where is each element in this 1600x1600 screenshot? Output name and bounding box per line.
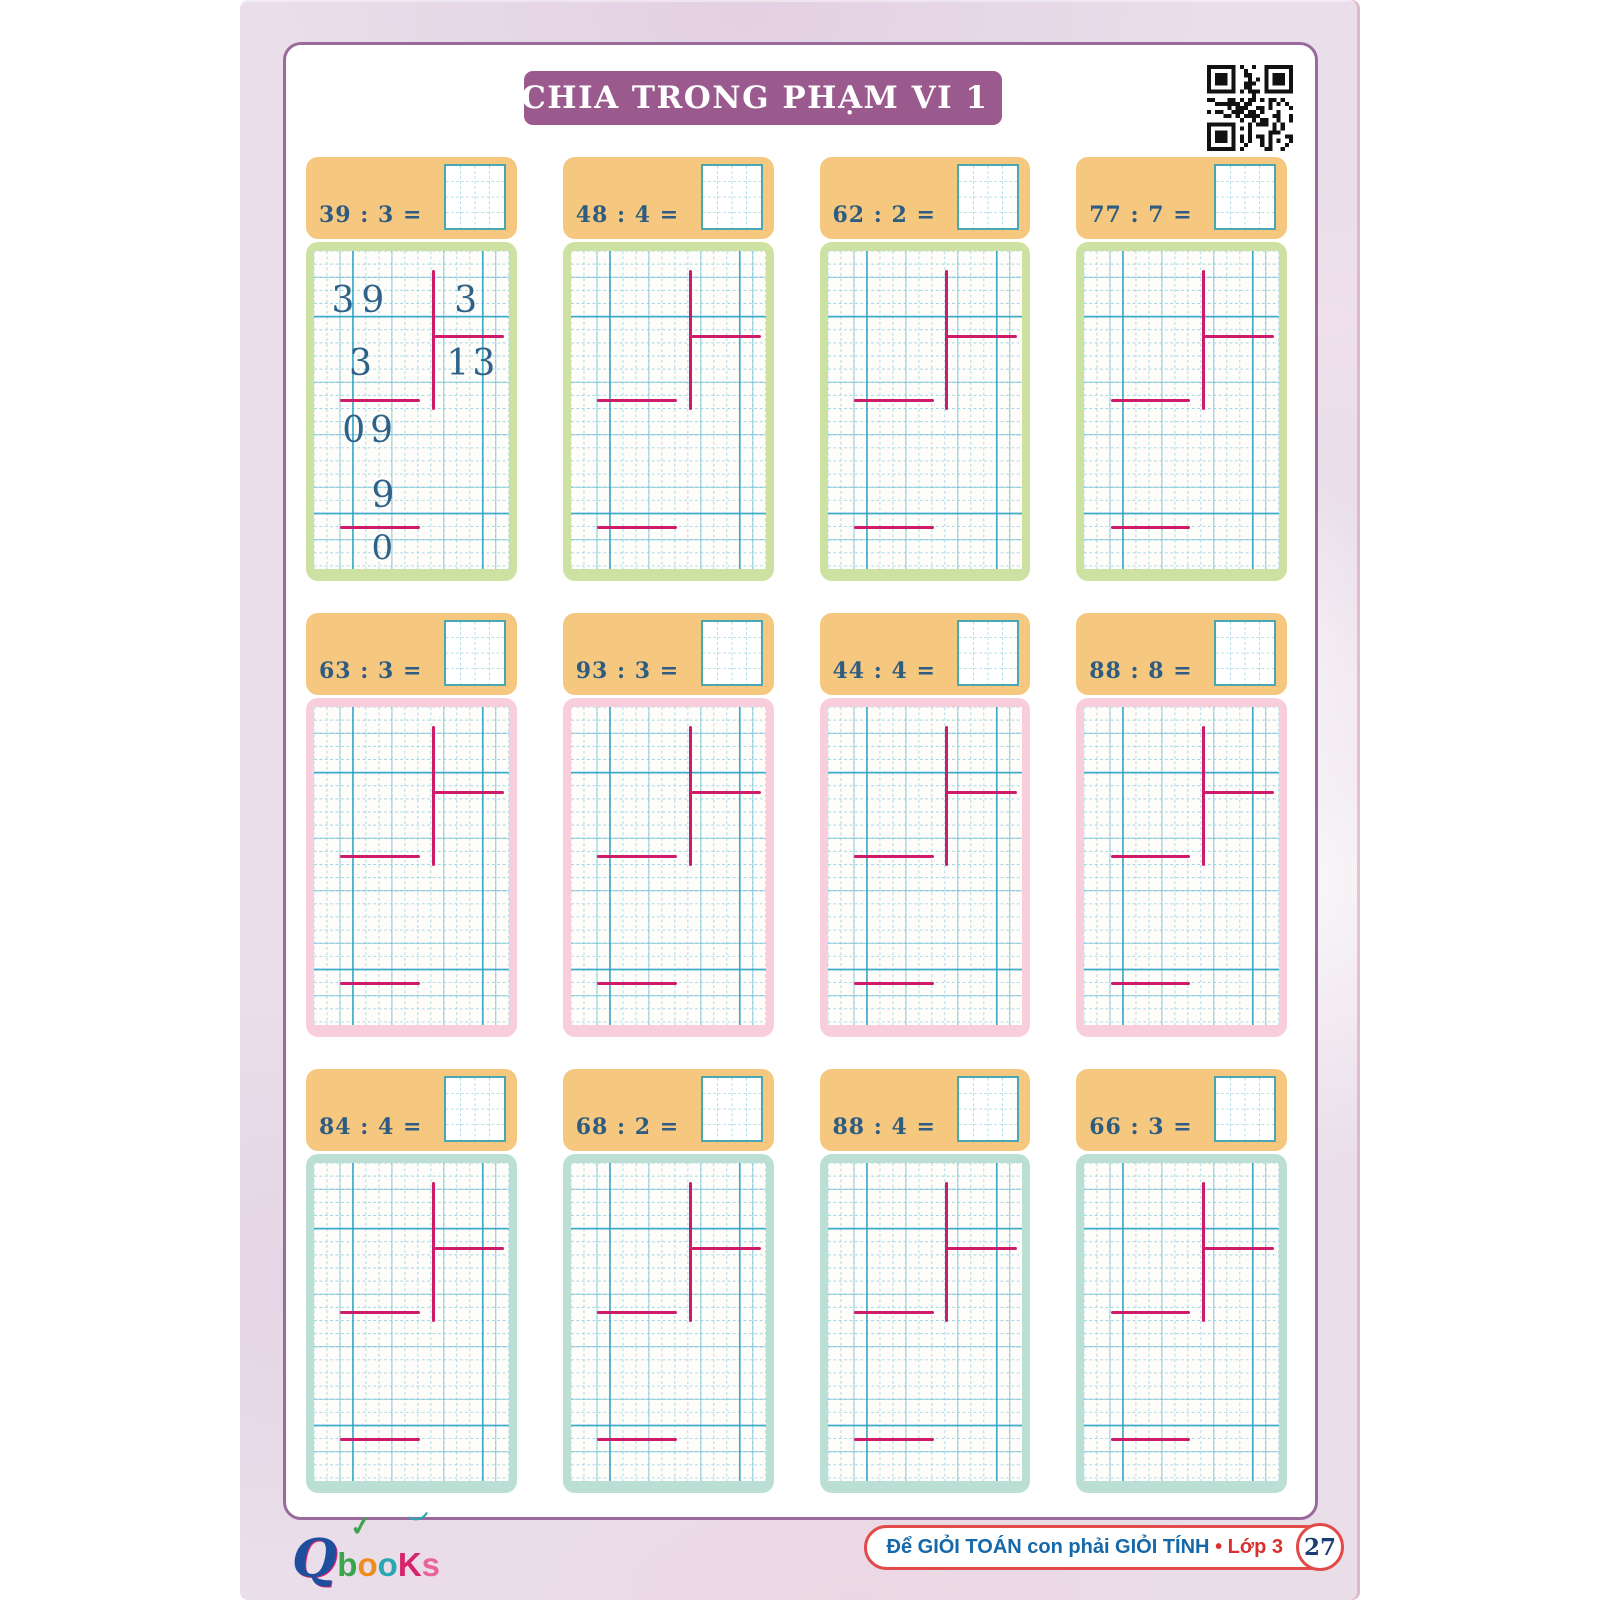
grid-paper bbox=[571, 707, 766, 1025]
answer-grid bbox=[703, 1078, 761, 1140]
worked-step-1: 3 bbox=[349, 346, 372, 382]
worked-step-2: 09 bbox=[342, 413, 398, 449]
card-frame bbox=[1076, 698, 1287, 1037]
checkmark-icon: ✓ bbox=[348, 1511, 374, 1544]
logo-letter: b bbox=[337, 1546, 357, 1583]
answer-box bbox=[701, 164, 763, 230]
logo-letter: s bbox=[422, 1546, 440, 1583]
subtraction-line-2 bbox=[597, 1438, 677, 1441]
subtraction-line-1 bbox=[340, 1311, 420, 1314]
subtraction-line-1 bbox=[597, 855, 677, 858]
division-vertical-line bbox=[945, 1182, 948, 1322]
page-number: 27 bbox=[1304, 1534, 1336, 1561]
subtraction-line-1 bbox=[1111, 1311, 1191, 1314]
card-header: 84 : 4 = bbox=[306, 1069, 517, 1151]
card-header: 88 : 8 = bbox=[1076, 613, 1287, 695]
answer-box bbox=[957, 164, 1019, 230]
problem-text: 84 : 4 = bbox=[319, 1114, 422, 1140]
subtraction-line-2 bbox=[597, 526, 677, 529]
division-quotient-line bbox=[1202, 1247, 1274, 1250]
answer-grid bbox=[703, 622, 761, 684]
exercise-card: 84 : 4 = bbox=[306, 1069, 517, 1493]
grid-paper-lines bbox=[1084, 707, 1279, 1025]
division-vertical-line bbox=[432, 726, 435, 866]
problem-text: 44 : 4 = bbox=[833, 658, 936, 684]
logo-letter: o bbox=[357, 1546, 377, 1583]
grid-paper bbox=[1084, 1163, 1279, 1481]
exercise-card: 88 : 8 = bbox=[1076, 613, 1287, 1037]
grid-paper bbox=[1084, 707, 1279, 1025]
card-frame bbox=[563, 242, 774, 581]
card-frame bbox=[820, 242, 1031, 581]
worked-dividend: 39 bbox=[332, 283, 392, 319]
card-frame bbox=[306, 1154, 517, 1493]
card-header: 68 : 2 = bbox=[563, 1069, 774, 1151]
grid-paper bbox=[828, 1163, 1023, 1481]
grid-paper-lines bbox=[314, 707, 509, 1025]
subtraction-line-2 bbox=[854, 526, 934, 529]
grid-paper-lines bbox=[828, 1163, 1023, 1481]
footer-grade: Lớp 3 bbox=[1228, 1536, 1283, 1558]
division-vertical-line bbox=[945, 270, 948, 410]
problem-text: 66 : 3 = bbox=[1089, 1114, 1192, 1140]
card-header: 88 : 4 = bbox=[820, 1069, 1031, 1151]
card-header: 48 : 4 = bbox=[563, 157, 774, 239]
division-vertical-line bbox=[1202, 1182, 1205, 1322]
exercise-card: 62 : 2 = bbox=[820, 157, 1031, 581]
publisher-logo: QbooKs ✓ ︶ bbox=[292, 1528, 440, 1600]
exercise-card: 39 : 3 = 39 3 13 3 09 9 0 bbox=[306, 157, 517, 581]
page-background: { "title": "BÉ CHIA TRONG PHẠM VI 1 000"… bbox=[0, 0, 1600, 1600]
subtraction-line-1 bbox=[854, 855, 934, 858]
footer-pill: Để GIỎI TOÁN con phải GIỎI TÍNH • Lớp 3 bbox=[864, 1525, 1338, 1570]
subtraction-line-1 bbox=[854, 399, 934, 402]
grid-paper-lines bbox=[314, 1163, 509, 1481]
card-header: 77 : 7 = bbox=[1076, 157, 1287, 239]
card-header: 63 : 3 = bbox=[306, 613, 517, 695]
worked-quotient: 13 bbox=[446, 346, 498, 382]
subtraction-line-2 bbox=[1111, 982, 1191, 985]
exercise-card: 63 : 3 = bbox=[306, 613, 517, 1037]
problem-text: 62 : 2 = bbox=[833, 202, 936, 228]
card-frame bbox=[306, 698, 517, 1037]
answer-grid bbox=[1216, 622, 1274, 684]
answer-box bbox=[701, 620, 763, 686]
answer-box bbox=[444, 164, 506, 230]
footer-badge: Để GIỎI TOÁN con phải GIỎI TÍNH • Lớp 3 … bbox=[864, 1523, 1344, 1571]
card-frame bbox=[563, 698, 774, 1037]
worksheet-photo: BÉ CHIA TRONG PHẠM VI 1 000 39 : 3 = 39 … bbox=[240, 0, 1360, 1600]
grid-paper-lines bbox=[571, 1163, 766, 1481]
subtraction-line-2 bbox=[854, 982, 934, 985]
division-vertical-line bbox=[689, 270, 692, 410]
problem-text: 93 : 3 = bbox=[576, 658, 679, 684]
subtraction-line-1 bbox=[340, 399, 420, 402]
logo-q-letter: Q bbox=[292, 1528, 337, 1589]
worked-step-4: 0 bbox=[371, 531, 393, 565]
division-quotient-line bbox=[432, 335, 504, 338]
problem-text: 68 : 2 = bbox=[576, 1114, 679, 1140]
exercise-card: 48 : 4 = bbox=[563, 157, 774, 581]
division-quotient-line bbox=[689, 335, 761, 338]
answer-box bbox=[444, 1076, 506, 1142]
division-quotient-line bbox=[945, 791, 1017, 794]
worksheet-panel: BÉ CHIA TRONG PHẠM VI 1 000 39 : 3 = 39 … bbox=[283, 42, 1318, 1520]
card-header: 62 : 2 = bbox=[820, 157, 1031, 239]
division-quotient-line bbox=[1202, 335, 1274, 338]
subtraction-line-2 bbox=[854, 1438, 934, 1441]
division-vertical-line bbox=[689, 726, 692, 866]
subtraction-line-1 bbox=[1111, 399, 1191, 402]
answer-box bbox=[1214, 1076, 1276, 1142]
qr-code-icon bbox=[1207, 65, 1293, 151]
worked-divisor: 3 bbox=[454, 283, 477, 319]
grid-paper-lines bbox=[571, 251, 766, 569]
logo-letter: K bbox=[398, 1546, 422, 1583]
answer-box bbox=[1214, 620, 1276, 686]
answer-grid bbox=[959, 166, 1017, 228]
page-number-badge: 27 bbox=[1296, 1523, 1344, 1571]
division-quotient-line bbox=[689, 791, 761, 794]
logo-wordmark: booKs bbox=[337, 1561, 440, 1580]
cards-grid: 39 : 3 = 39 3 13 3 09 9 0 bbox=[306, 157, 1287, 1493]
division-vertical-line bbox=[432, 1182, 435, 1322]
grid-paper-lines bbox=[828, 707, 1023, 1025]
division-vertical-line bbox=[1202, 270, 1205, 410]
card-frame bbox=[820, 1154, 1031, 1493]
footer-bullet: • bbox=[1215, 1536, 1222, 1558]
answer-box bbox=[957, 620, 1019, 686]
worked-step-3: 9 bbox=[371, 478, 394, 514]
grid-paper: 39 3 13 3 09 9 0 bbox=[314, 251, 509, 569]
division-quotient-line bbox=[945, 335, 1017, 338]
card-frame bbox=[1076, 242, 1287, 581]
problem-text: 88 : 8 = bbox=[1089, 658, 1192, 684]
subtraction-line-1 bbox=[597, 399, 677, 402]
answer-grid bbox=[446, 622, 504, 684]
problem-text: 88 : 4 = bbox=[833, 1114, 936, 1140]
problem-text: 63 : 3 = bbox=[319, 658, 422, 684]
card-frame: 39 3 13 3 09 9 0 bbox=[306, 242, 517, 581]
grid-paper bbox=[1084, 251, 1279, 569]
division-quotient-line bbox=[432, 1247, 504, 1250]
grid-paper-lines bbox=[828, 251, 1023, 569]
grid-paper bbox=[571, 251, 766, 569]
exercise-card: 88 : 4 = bbox=[820, 1069, 1031, 1493]
subtraction-line-1 bbox=[340, 855, 420, 858]
subtraction-line-2 bbox=[597, 982, 677, 985]
division-quotient-line bbox=[1202, 791, 1274, 794]
card-header: 66 : 3 = bbox=[1076, 1069, 1287, 1151]
problem-text: 39 : 3 = bbox=[319, 202, 422, 228]
answer-grid bbox=[959, 622, 1017, 684]
subtraction-line-1 bbox=[597, 1311, 677, 1314]
subtraction-line-1 bbox=[854, 1311, 934, 1314]
footer-slogan: Để GIỎI TOÁN con phải GIỎI TÍNH bbox=[887, 1536, 1210, 1558]
exercise-card: 93 : 3 = bbox=[563, 613, 774, 1037]
card-header: 93 : 3 = bbox=[563, 613, 774, 695]
division-quotient-line bbox=[945, 1247, 1017, 1250]
subtraction-line-2 bbox=[1111, 1438, 1191, 1441]
division-quotient-line bbox=[689, 1247, 761, 1250]
answer-grid bbox=[1216, 166, 1274, 228]
subtraction-line-1 bbox=[1111, 855, 1191, 858]
grid-paper bbox=[828, 707, 1023, 1025]
answer-grid bbox=[703, 166, 761, 228]
grid-paper bbox=[828, 251, 1023, 569]
grid-paper bbox=[314, 1163, 509, 1481]
answer-grid bbox=[446, 166, 504, 228]
problem-text: 77 : 7 = bbox=[1089, 202, 1192, 228]
grid-paper-lines bbox=[1084, 1163, 1279, 1481]
card-frame bbox=[1076, 1154, 1287, 1493]
grid-paper-lines bbox=[571, 707, 766, 1025]
card-frame bbox=[563, 1154, 774, 1493]
division-quotient-line bbox=[432, 791, 504, 794]
answer-box bbox=[957, 1076, 1019, 1142]
answer-box bbox=[701, 1076, 763, 1142]
problem-text: 48 : 4 = bbox=[576, 202, 679, 228]
division-vertical-line bbox=[432, 270, 435, 410]
grid-paper-lines bbox=[1084, 251, 1279, 569]
grid-paper bbox=[571, 1163, 766, 1481]
subtraction-line-2 bbox=[1111, 526, 1191, 529]
exercise-card: 68 : 2 = bbox=[563, 1069, 774, 1493]
exercise-card: 44 : 4 = bbox=[820, 613, 1031, 1037]
answer-box bbox=[444, 620, 506, 686]
card-frame bbox=[820, 698, 1031, 1037]
logo-letter: o bbox=[378, 1546, 398, 1583]
page-title: BÉ CHIA TRONG PHẠM VI 1 000 bbox=[524, 71, 1002, 125]
answer-grid bbox=[1216, 1078, 1274, 1140]
card-header: 44 : 4 = bbox=[820, 613, 1031, 695]
card-header: 39 : 3 = bbox=[306, 157, 517, 239]
answer-box bbox=[1214, 164, 1276, 230]
exercise-card: 66 : 3 = bbox=[1076, 1069, 1287, 1493]
division-vertical-line bbox=[689, 1182, 692, 1322]
exercise-card: 77 : 7 = bbox=[1076, 157, 1287, 581]
subtraction-line-2 bbox=[340, 1438, 420, 1441]
division-vertical-line bbox=[945, 726, 948, 866]
subtraction-line-2 bbox=[340, 982, 420, 985]
qr-code-pattern bbox=[1207, 65, 1293, 151]
grid-paper bbox=[314, 707, 509, 1025]
answer-grid bbox=[446, 1078, 504, 1140]
answer-grid bbox=[959, 1078, 1017, 1140]
division-vertical-line bbox=[1202, 726, 1205, 866]
